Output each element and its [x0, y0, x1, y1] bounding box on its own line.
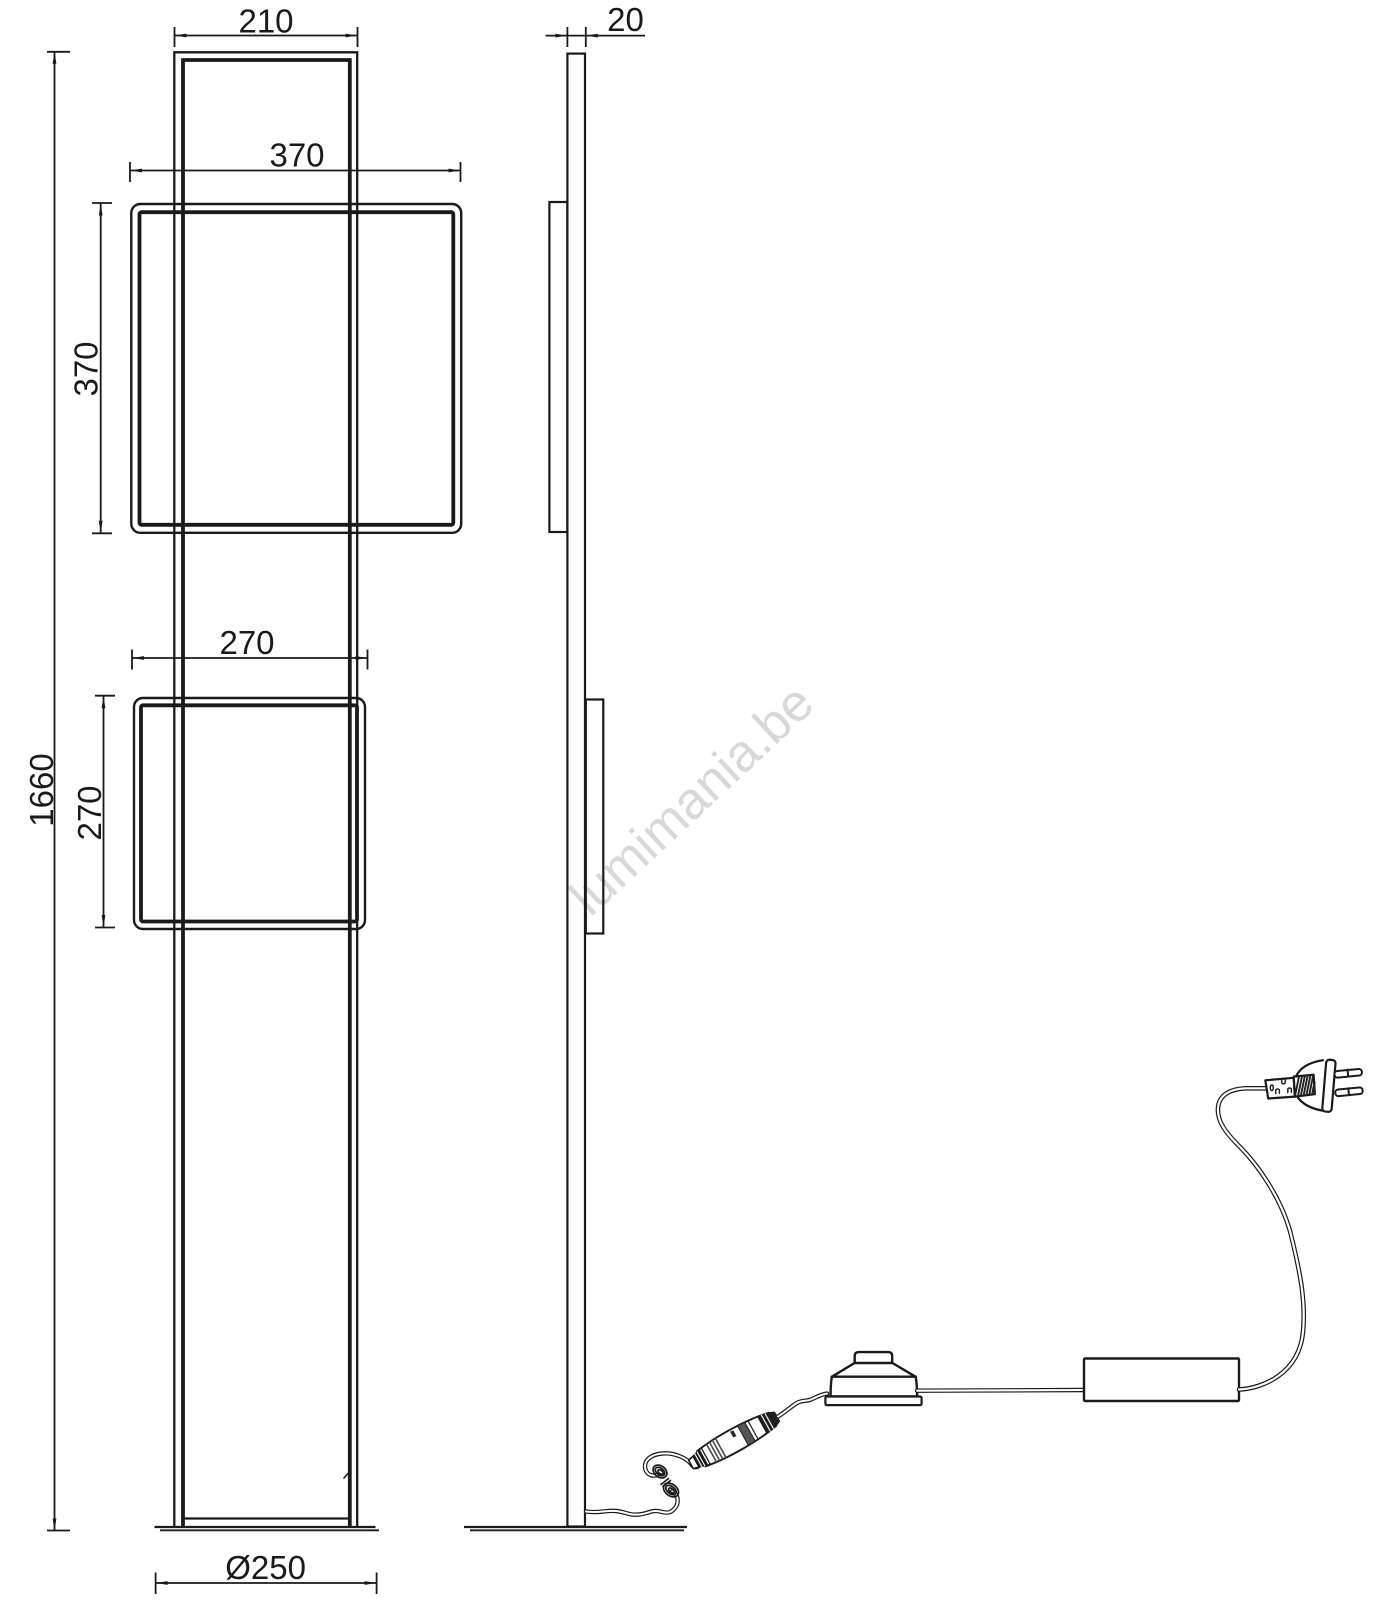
svg-text:370: 370: [68, 341, 105, 396]
svg-text:Ø250: Ø250: [225, 1549, 306, 1586]
svg-text:210: 210: [238, 3, 293, 40]
svg-text:20: 20: [607, 1, 644, 38]
svg-text:1660: 1660: [23, 753, 60, 826]
svg-text:270: 270: [71, 785, 108, 840]
svg-text:270: 270: [219, 624, 274, 661]
svg-text:370: 370: [269, 137, 324, 174]
